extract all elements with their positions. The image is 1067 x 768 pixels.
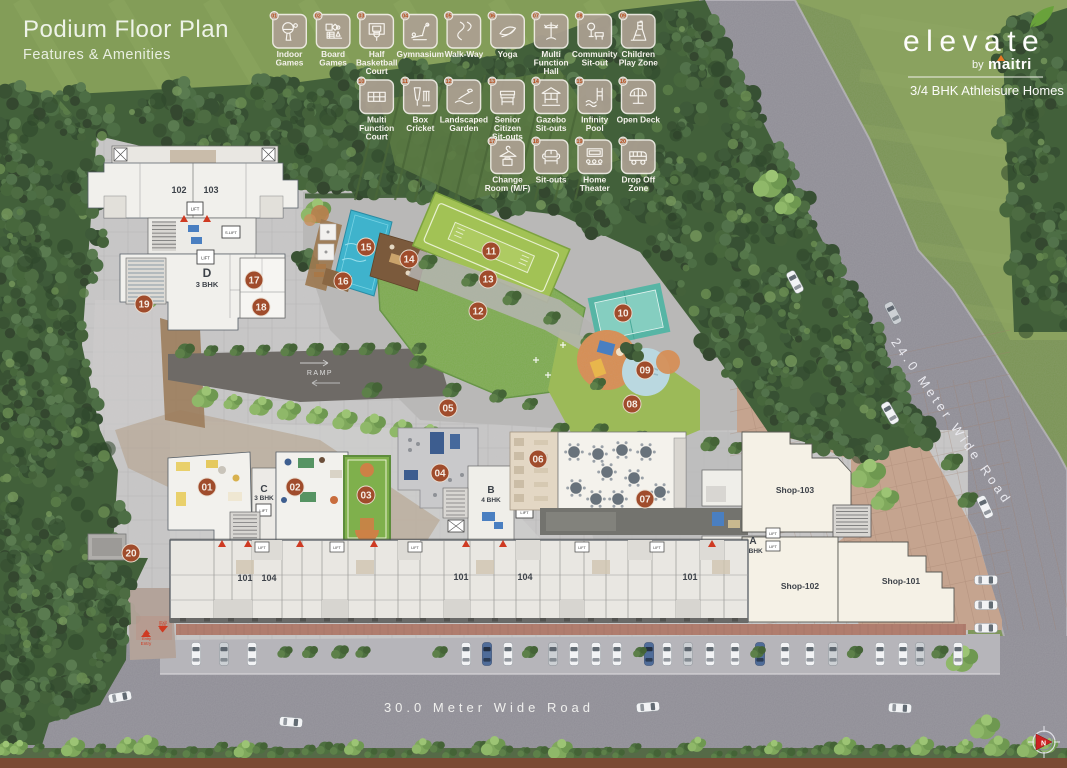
svg-text:04: 04 [434,469,446,480]
svg-text:LIFT: LIFT [653,546,661,550]
svg-text:01: 01 [271,14,277,20]
svg-text:Court: Court [366,132,388,142]
svg-text:03: 03 [358,14,364,20]
svg-text:Games: Games [319,58,347,68]
svg-text:12: 12 [472,307,484,318]
svg-text:02: 02 [289,483,301,494]
svg-text:19: 19 [577,139,583,145]
svg-text:04: 04 [402,14,408,20]
svg-text:Entry: Entry [141,641,152,646]
svg-text:103: 103 [203,185,218,195]
svg-text:15: 15 [577,79,583,85]
svg-text:LIFT: LIFT [191,207,200,212]
svg-text:20: 20 [620,139,626,145]
svg-text:06: 06 [532,455,544,466]
svg-text:RAMP: RAMP [307,370,333,377]
svg-text:Theater: Theater [580,183,611,193]
svg-text:101: 101 [237,573,252,583]
svg-text:3/4 BHK Athleisure Homes: 3/4 BHK Athleisure Homes [910,83,1064,98]
svg-text:Pool: Pool [586,123,604,133]
svg-text:LIFT: LIFT [769,545,777,549]
svg-text:LIFT: LIFT [520,510,529,515]
svg-text:Zone: Zone [628,183,648,193]
svg-text:102: 102 [171,185,186,195]
svg-text:Sit-outs: Sit-outs [536,123,567,133]
svg-text:Podium Floor Plan: Podium Floor Plan [23,16,229,43]
svg-text:10: 10 [617,309,629,320]
svg-text:Exit: Exit [159,620,167,625]
svg-text:LIFT: LIFT [411,546,419,550]
svg-text:N: N [1041,741,1046,748]
svg-text:3 BHK: 3 BHK [254,495,274,502]
svg-text:08: 08 [626,400,638,411]
svg-text:13: 13 [482,275,494,286]
svg-text:12: 12 [446,79,452,85]
svg-text:Sit-out: Sit-out [582,58,609,68]
svg-text:Open Deck: Open Deck [617,115,661,125]
svg-text:101: 101 [682,572,697,582]
svg-text:A: A [749,536,756,547]
svg-text:09: 09 [639,366,651,377]
svg-text:104: 104 [517,572,532,582]
svg-text:Shop-101: Shop-101 [882,576,921,586]
svg-text:18: 18 [533,139,539,145]
svg-text:Court: Court [366,66,388,76]
svg-text:Garden: Garden [449,123,478,133]
svg-text:03: 03 [360,491,372,502]
svg-text:05: 05 [442,404,454,415]
svg-text:Shop-103: Shop-103 [776,485,815,495]
svg-text:19: 19 [138,300,150,311]
svg-text:11: 11 [402,79,408,85]
svg-text:Sit-outs: Sit-outs [536,175,567,185]
svg-text:104: 104 [261,573,276,583]
svg-text:30.0 Meter Wide Road: 30.0 Meter Wide Road [384,700,594,715]
svg-text:LIFT: LIFT [578,546,586,550]
svg-text:20: 20 [125,549,137,560]
svg-text:16: 16 [620,79,626,85]
svg-text:Play Zone: Play Zone [619,58,659,68]
svg-text:09: 09 [620,14,626,20]
svg-text:18: 18 [255,303,267,314]
svg-text:S.LIFT: S.LIFT [225,230,238,235]
svg-text:elevate: elevate [903,25,1045,58]
svg-text:Cricket: Cricket [406,123,434,133]
svg-text:15: 15 [360,243,372,254]
svg-text:05: 05 [446,14,452,20]
svg-text:B: B [487,485,494,496]
svg-text:Features & Amenities: Features & Amenities [23,47,171,63]
svg-text:D: D [203,266,212,280]
svg-text:10: 10 [358,79,364,85]
svg-text:LIFT: LIFT [769,532,777,536]
svg-text:LIFT: LIFT [259,508,268,513]
svg-text:01: 01 [201,483,213,494]
svg-text:Games: Games [276,58,304,68]
svg-text:101: 101 [453,572,468,582]
svg-text:LIFT: LIFT [201,256,210,261]
svg-text:13: 13 [489,79,495,85]
svg-text:14: 14 [403,255,415,266]
svg-text:3 BHK: 3 BHK [196,280,219,289]
svg-text:06: 06 [489,14,495,20]
svg-text:LIFT: LIFT [333,546,341,550]
svg-text:Hall: Hall [543,66,558,76]
svg-text:C: C [260,484,267,495]
svg-text:11: 11 [486,247,497,258]
svg-text:08: 08 [577,14,583,20]
svg-text:4 BHK: 4 BHK [481,497,501,504]
svg-text:Gymnasium: Gymnasium [397,49,445,59]
svg-text:Walk-Way: Walk-Way [445,49,484,59]
svg-text:02: 02 [315,14,321,20]
svg-text:Room (M/F): Room (M/F) [485,183,531,193]
svg-text:by: by [972,59,984,71]
svg-text:17: 17 [248,276,260,287]
svg-text:Shop-102: Shop-102 [781,581,820,591]
svg-text:14: 14 [533,79,539,85]
svg-text:07: 07 [533,14,539,20]
svg-text:LIFT: LIFT [258,546,266,550]
svg-text:16: 16 [337,277,349,288]
svg-text:07: 07 [639,495,651,506]
svg-text:17: 17 [489,139,495,145]
svg-text:Yoga: Yoga [498,49,518,59]
svg-text:maitri: maitri [988,56,1032,73]
